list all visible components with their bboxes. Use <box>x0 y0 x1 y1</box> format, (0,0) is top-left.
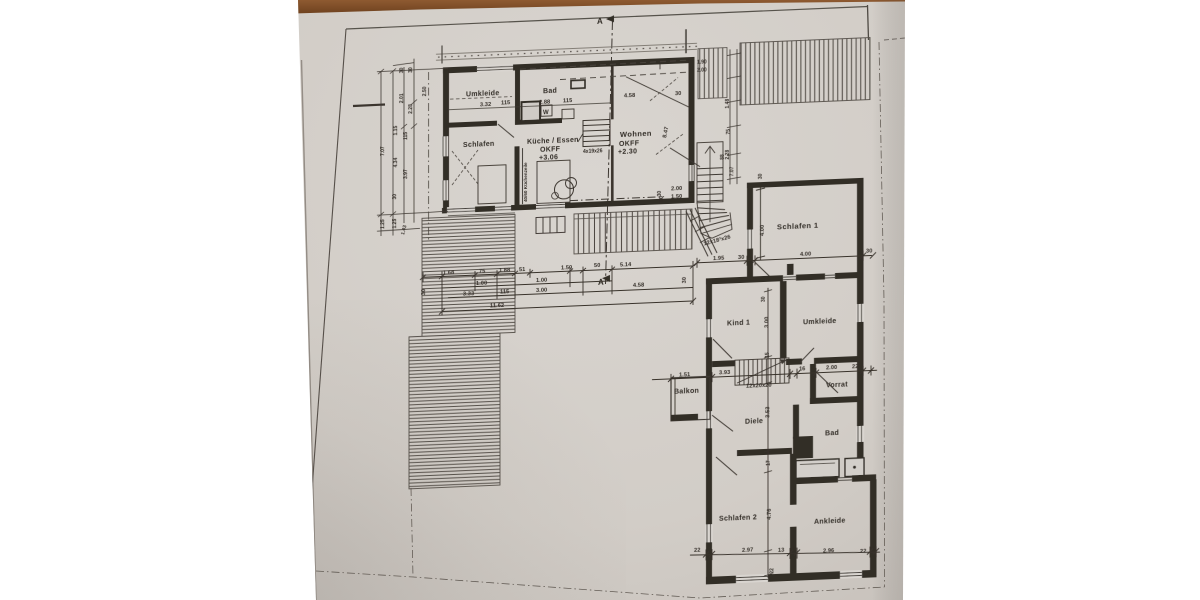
svg-text:7.07: 7.07 <box>380 146 386 156</box>
svg-text:Kind 1: Kind 1 <box>727 320 750 328</box>
svg-text:115: 115 <box>500 289 509 295</box>
svg-text:3.00: 3.00 <box>536 288 547 294</box>
svg-text:4.00: 4.00 <box>760 225 766 237</box>
svg-text:+2.30: +2.30 <box>618 148 637 156</box>
svg-text:1.00: 1.00 <box>476 281 487 287</box>
svg-text:1.25: 1.25 <box>392 218 398 228</box>
svg-text:13: 13 <box>778 548 784 554</box>
svg-text:30: 30 <box>866 248 872 254</box>
svg-text:3.53: 3.53 <box>766 406 772 418</box>
svg-text:2.50: 2.50 <box>422 86 428 96</box>
svg-text:30: 30 <box>421 289 427 296</box>
svg-text:51: 51 <box>519 267 525 273</box>
svg-text:30: 30 <box>738 255 744 261</box>
svg-text:30: 30 <box>675 91 681 97</box>
svg-text:115: 115 <box>501 100 510 106</box>
svg-text:1.95: 1.95 <box>713 256 724 262</box>
svg-text:4x19x26: 4x19x26 <box>583 148 603 155</box>
svg-text:17: 17 <box>766 460 772 466</box>
svg-text:2.00: 2.00 <box>671 186 682 192</box>
svg-text:2.01: 2.01 <box>399 93 405 103</box>
svg-text:3.97: 3.97 <box>403 169 409 179</box>
svg-text:30: 30 <box>682 277 688 284</box>
svg-text:OKFF: OKFF <box>540 146 561 154</box>
svg-text:30: 30 <box>758 173 764 179</box>
svg-text:2.88: 2.88 <box>539 99 550 105</box>
svg-text:Schlafen 1: Schlafen 1 <box>777 221 819 232</box>
svg-text:30: 30 <box>657 190 663 196</box>
svg-text:Umkleide: Umkleide <box>803 318 837 326</box>
svg-text:A: A <box>597 17 603 26</box>
svg-text:2.97: 2.97 <box>742 547 753 553</box>
svg-text:5.14: 5.14 <box>620 262 632 269</box>
svg-text:3.00: 3.00 <box>765 316 771 328</box>
svg-text:Schlafen: Schlafen <box>463 141 495 149</box>
svg-text:Balkon: Balkon <box>674 388 699 396</box>
svg-text:30: 30 <box>399 67 405 73</box>
svg-text:Wohnen: Wohnen <box>620 129 652 139</box>
svg-text:16: 16 <box>799 366 805 372</box>
svg-text:Ankleide: Ankleide <box>814 518 846 526</box>
svg-text:Umkleide: Umkleide <box>466 90 500 98</box>
svg-text:2.00: 2.00 <box>697 67 707 73</box>
svg-text:22: 22 <box>770 568 776 574</box>
svg-text:15: 15 <box>765 352 771 358</box>
svg-text:1.50: 1.50 <box>671 194 682 200</box>
svg-text:30: 30 <box>408 67 414 73</box>
svg-text:Bad: Bad <box>825 430 839 438</box>
svg-text:W: W <box>543 110 549 116</box>
svg-text:75: 75 <box>479 269 485 275</box>
svg-text:4.76: 4.76 <box>767 508 773 520</box>
svg-text:7.07: 7.07 <box>730 166 736 176</box>
svg-text:11.62: 11.62 <box>490 303 504 310</box>
svg-text:50: 50 <box>594 263 600 269</box>
svg-text:+3.06: +3.06 <box>539 154 558 162</box>
svg-text:115: 115 <box>403 132 409 141</box>
svg-text:1.48: 1.48 <box>725 98 731 108</box>
svg-text:30: 30 <box>392 194 398 200</box>
svg-text:Bad: Bad <box>543 88 557 96</box>
svg-text:2.28: 2.28 <box>408 104 414 114</box>
svg-text:30: 30 <box>761 296 767 302</box>
svg-text:Vorrat: Vorrat <box>826 381 848 389</box>
svg-text:1.51: 1.51 <box>679 372 690 378</box>
svg-text:22: 22 <box>860 549 866 555</box>
svg-text:3.32: 3.32 <box>480 102 491 108</box>
svg-text:1.50: 1.50 <box>561 265 572 271</box>
svg-text:22: 22 <box>694 548 700 554</box>
svg-text:1.88: 1.88 <box>499 268 510 274</box>
svg-text:Diele: Diele <box>745 418 763 426</box>
svg-text:40/60 Küchenzeile: 40/60 Küchenzeile <box>523 162 528 202</box>
svg-text:4.58: 4.58 <box>633 283 644 289</box>
svg-text:115: 115 <box>563 98 572 104</box>
svg-text:A: A <box>598 278 604 287</box>
svg-text:4.00: 4.00 <box>800 252 811 258</box>
svg-text:1.68: 1.68 <box>443 270 454 276</box>
svg-text:22: 22 <box>852 364 858 370</box>
svg-text:2.00: 2.00 <box>826 365 837 371</box>
svg-text:3.93: 3.93 <box>719 370 730 376</box>
svg-text:4.34: 4.34 <box>393 157 399 167</box>
svg-text:4.58: 4.58 <box>624 93 635 99</box>
svg-text:1.90: 1.90 <box>697 59 707 65</box>
svg-text:1.00: 1.00 <box>536 278 547 284</box>
svg-text:OKFF: OKFF <box>619 140 640 148</box>
svg-text:75: 75 <box>726 129 732 135</box>
svg-text:2.96: 2.96 <box>823 548 834 554</box>
svg-text:1.25: 1.25 <box>380 219 386 229</box>
svg-text:1.15: 1.15 <box>393 125 399 135</box>
svg-text:3.33: 3.33 <box>463 291 474 297</box>
